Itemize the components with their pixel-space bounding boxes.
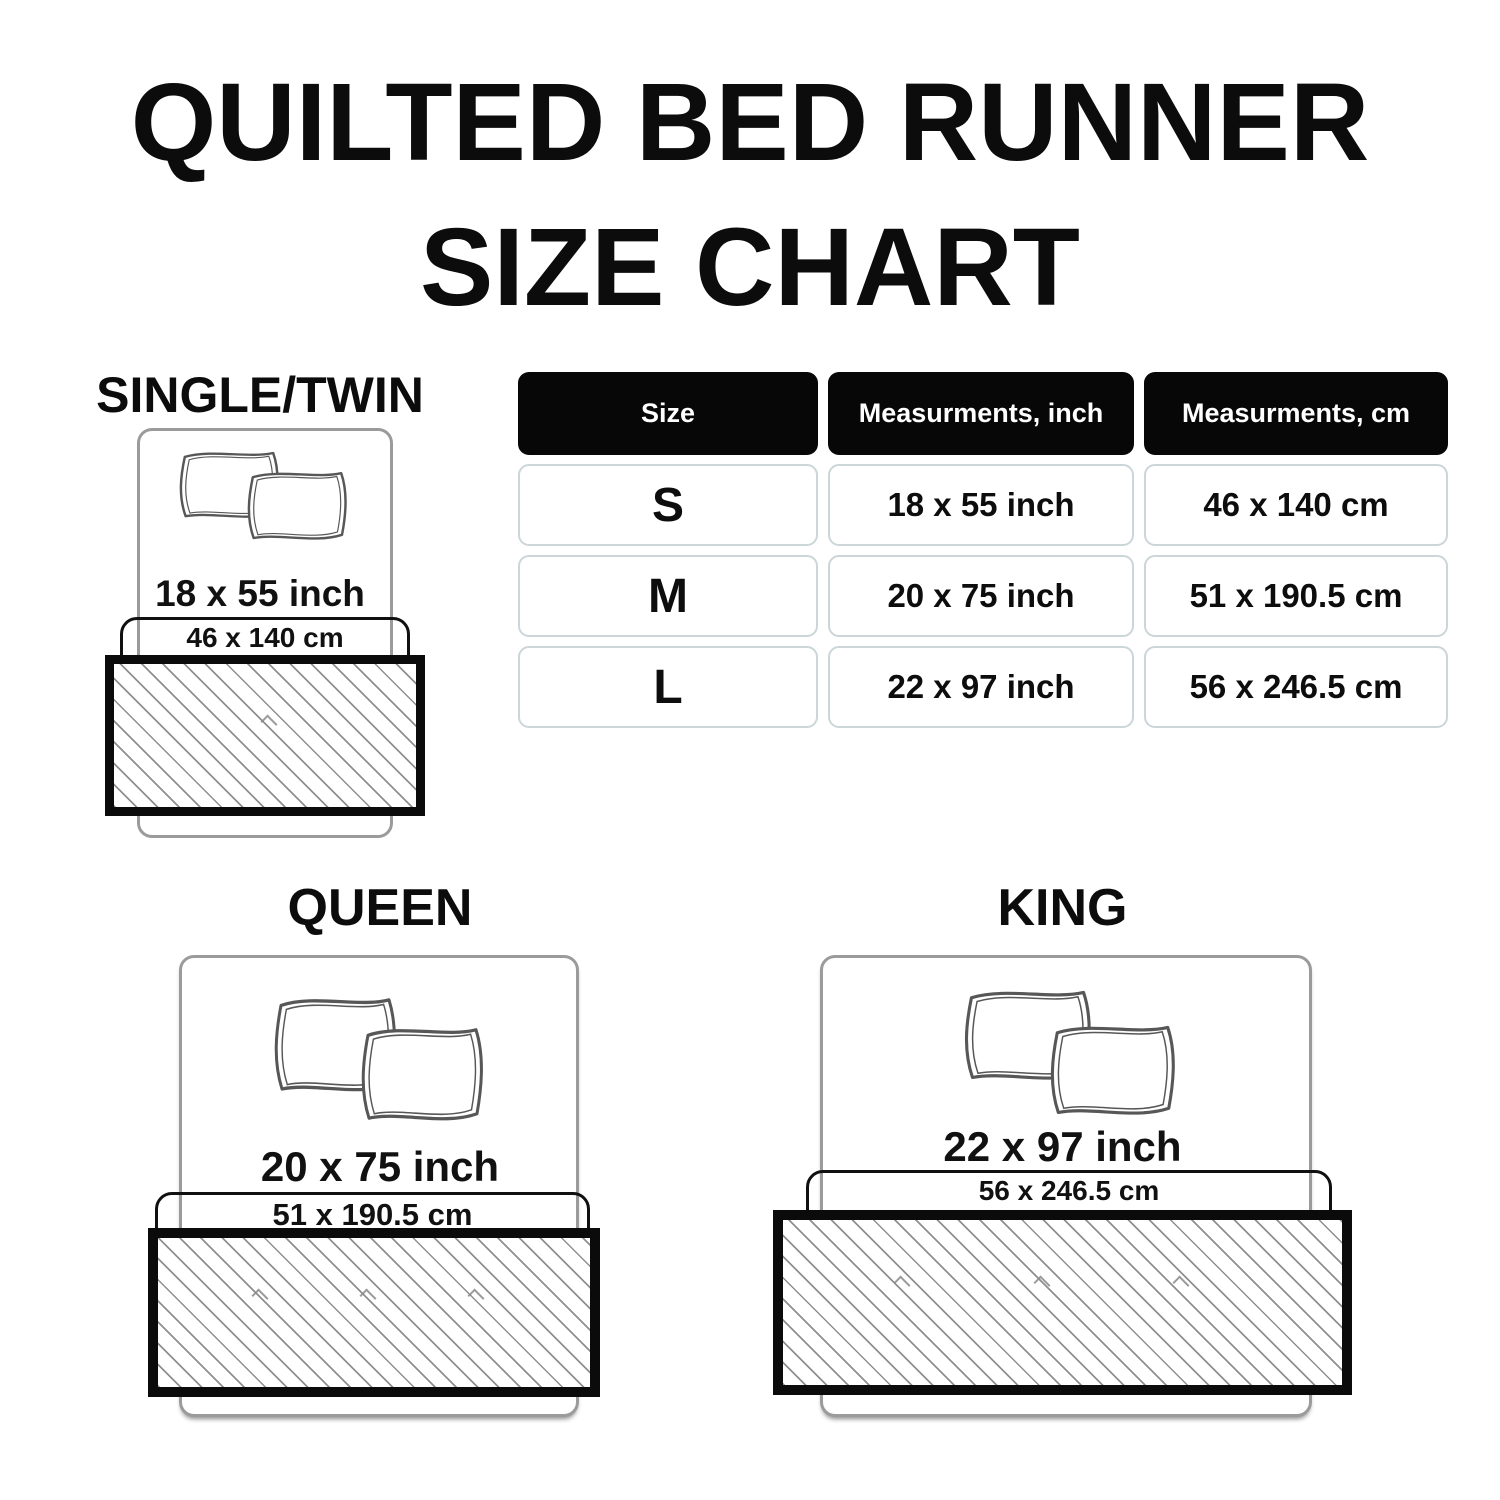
stitch-mark xyxy=(360,1288,377,1305)
pillow-icon xyxy=(1045,1018,1180,1123)
diagram-label: KING xyxy=(770,882,1355,934)
size-table: Size Measurments, inch Measurments, cm S… xyxy=(518,372,1448,728)
stitch-mark xyxy=(260,715,277,732)
diagram-queen: QUEEN 20 x 75 inch 51 x 190.5 cm xyxy=(145,872,615,1442)
stitch-mark xyxy=(468,1288,485,1305)
cm-dimension-label: 56 x 246.5 cm xyxy=(809,1176,1329,1207)
pillow-icon xyxy=(356,1020,488,1129)
stitch-mark xyxy=(1173,1276,1190,1293)
page-title-line1: QUILTED BED RUNNER xyxy=(0,50,1500,195)
bed-runner-swatch xyxy=(773,1210,1352,1395)
diagram-single-twin: SINGLE/TWIN 18 x 55 inch 46 x 140 cm xyxy=(85,370,435,850)
table-header-size: Size xyxy=(518,372,818,455)
table-cell-cm-m: 51 x 190.5 cm xyxy=(1144,555,1448,637)
inch-dimension-label: 18 x 55 inch xyxy=(85,575,435,612)
table-cell-inch-s: 18 x 55 inch xyxy=(828,464,1134,546)
bed-runner-swatch xyxy=(105,655,425,816)
table-cell-inch-m: 20 x 75 inch xyxy=(828,555,1134,637)
page-title-line2: SIZE CHART xyxy=(0,195,1500,340)
table-cell-size-s: S xyxy=(518,464,818,546)
cm-dimension-label: 51 x 190.5 cm xyxy=(158,1198,587,1232)
table-cell-size-m: M xyxy=(518,555,818,637)
cm-dimension-label: 46 x 140 cm xyxy=(123,623,407,654)
table-cell-size-l: L xyxy=(518,646,818,728)
table-header-inch: Measurments, inch xyxy=(828,372,1134,455)
table-cell-cm-l: 56 x 246.5 cm xyxy=(1144,646,1448,728)
bed-runner-swatch xyxy=(148,1228,600,1397)
stitch-mark xyxy=(893,1276,910,1293)
pillow-icon xyxy=(243,466,351,546)
inch-dimension-label: 22 x 97 inch xyxy=(770,1126,1355,1168)
table-header-cm: Measurments, cm xyxy=(1144,372,1448,455)
diagram-label: QUEEN xyxy=(145,882,615,934)
stitch-mark xyxy=(252,1288,269,1305)
table-cell-cm-s: 46 x 140 cm xyxy=(1144,464,1448,546)
stitch-mark xyxy=(1033,1276,1050,1293)
table-cell-inch-l: 22 x 97 inch xyxy=(828,646,1134,728)
inch-dimension-label: 20 x 75 inch xyxy=(145,1146,615,1188)
diagram-king: KING 22 x 97 inch 56 x 246.5 cm xyxy=(770,872,1355,1442)
diagram-label: SINGLE/TWIN xyxy=(85,370,435,420)
page-title: QUILTED BED RUNNER SIZE CHART xyxy=(0,50,1500,340)
